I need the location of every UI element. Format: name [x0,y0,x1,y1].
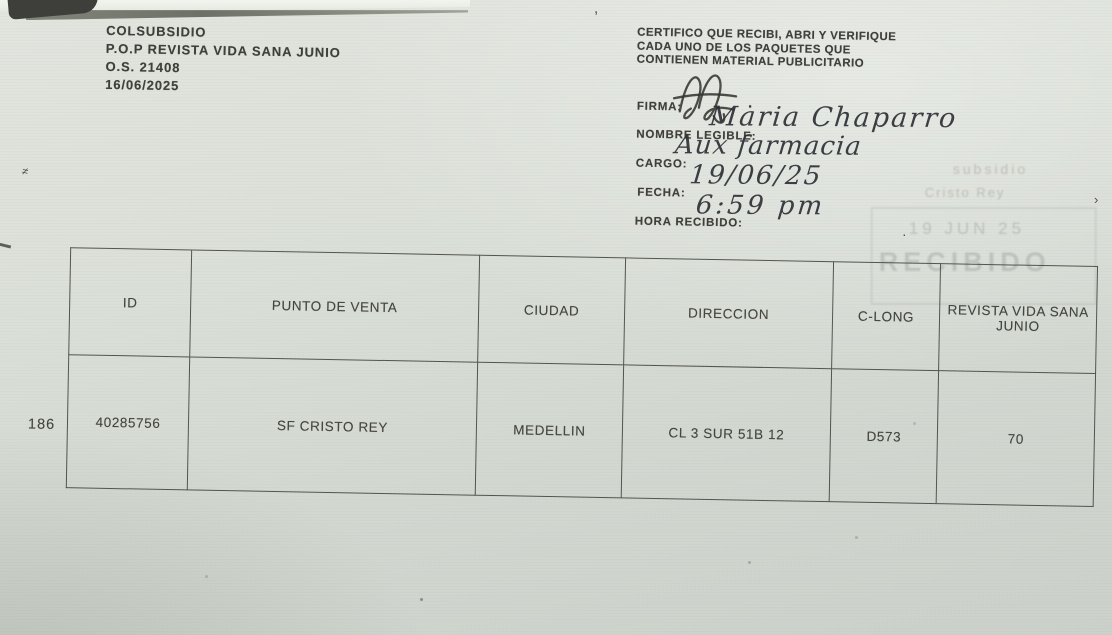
document-header: COLSUBSIDIO P.O.P REVISTA VIDA SANA JUNI… [105,22,341,98]
col-header-ciudad: CIUDAD [478,255,626,365]
paper-speck [420,598,423,601]
fecha-handwritten-value: 19/06/25 [688,160,824,191]
hora-handwritten-value: 6:59 pm [695,190,827,221]
paper-speck [855,536,858,539]
stamp-company-fragment: subsidio [953,161,1028,177]
stamp-date: 19 JUN 25 [909,219,1025,239]
paper-speck [205,575,208,578]
table-header-row: ID PUNTO DE VENTA CIUDAD DIRECCION C-LON… [69,248,1098,374]
col-header-direccion: DIRECCION [624,258,834,369]
document-content: COLSUBSIDIO P.O.P REVISTA VIDA SANA JUNI… [0,0,1112,635]
paper-speck [748,561,751,564]
cell-id: 40285756 [66,355,189,490]
cell-direccion: CL 3 SUR 51B 12 [621,365,831,502]
cell-ciudad: MEDELLIN [475,362,623,498]
stamp-branch-fragment: Cristo Rey [925,185,1006,200]
margin-row-number: 186 [28,416,55,432]
cell-clong: D573 [829,369,938,504]
col-header-id: ID [69,248,192,357]
order-date: 16/06/2025 [105,76,340,98]
certificate-statement: CERTIFICO QUE RECIBI, ABRI Y VERIFIQUE C… [637,27,988,74]
cell-punto: SF CRISTO REY [187,357,477,495]
certificate-block: CERTIFICO QUE RECIBI, ABRI Y VERIFIQUE C… [637,27,988,74]
nombre-handwritten-value: Maria Chaparro [708,101,959,134]
cargo-handwritten-value: Aux farmacia [674,130,864,161]
table-row: 40285756 SF CRISTO REY MEDELLIN CL 3 SUR… [66,355,1095,507]
distribution-table: ID PUNTO DE VENTA CIUDAD DIRECCION C-LON… [66,247,1098,507]
scanned-delivery-certificate: COLSUBSIDIO P.O.P REVISTA VIDA SANA JUNI… [0,0,1112,635]
col-header-punto: PUNTO DE VENTA [190,250,480,362]
col-header-revista: REVISTA VIDA SANA JUNIO [939,264,1098,374]
cell-revista: 70 [936,371,1095,507]
paper-speck [913,422,916,425]
col-header-clong: C-LONG [832,262,941,371]
fecha-label: FECHA: [637,187,685,200]
